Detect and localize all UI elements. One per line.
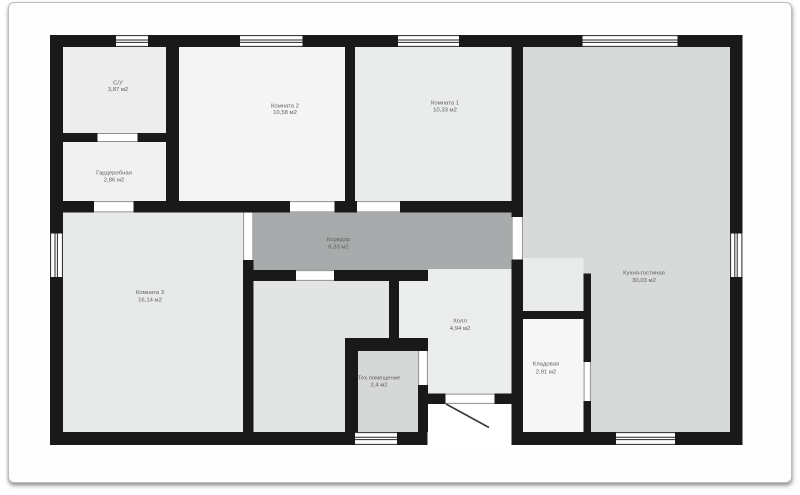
svg-text:3,87 м2: 3,87 м2 [108,87,128,93]
svg-text:Кладовая: Кладовая [533,362,559,368]
svg-text:4,94 м2: 4,94 м2 [450,326,470,332]
svg-text:Комната 1: Комната 1 [431,101,459,107]
svg-text:С/У: С/У [113,81,123,87]
svg-text:10,58 м2: 10,58 м2 [273,110,297,116]
svg-text:6,33 м2: 6,33 м2 [328,245,348,251]
svg-text:Гардеробная: Гардеробная [96,171,132,177]
svg-text:Коридор: Коридор [327,237,351,243]
svg-text:Комната 3: Комната 3 [136,290,165,296]
svg-text:30,03 м2: 30,03 м2 [632,278,656,284]
svg-text:2,4 м2: 2,4 м2 [370,383,387,389]
svg-text:2,91 м2: 2,91 м2 [536,370,556,376]
svg-text:10,33 м2: 10,33 м2 [433,108,457,114]
svg-text:2,86 м2: 2,86 м2 [104,178,124,184]
svg-text:Кухня-гостиная: Кухня-гостиная [623,271,665,277]
svg-text:Комната 2: Комната 2 [271,104,299,110]
svg-text:Холл: Холл [453,319,467,325]
svg-text:16,14 м2: 16,14 м2 [138,298,162,304]
svg-text:Тех.помещение: Тех.помещение [358,376,401,382]
